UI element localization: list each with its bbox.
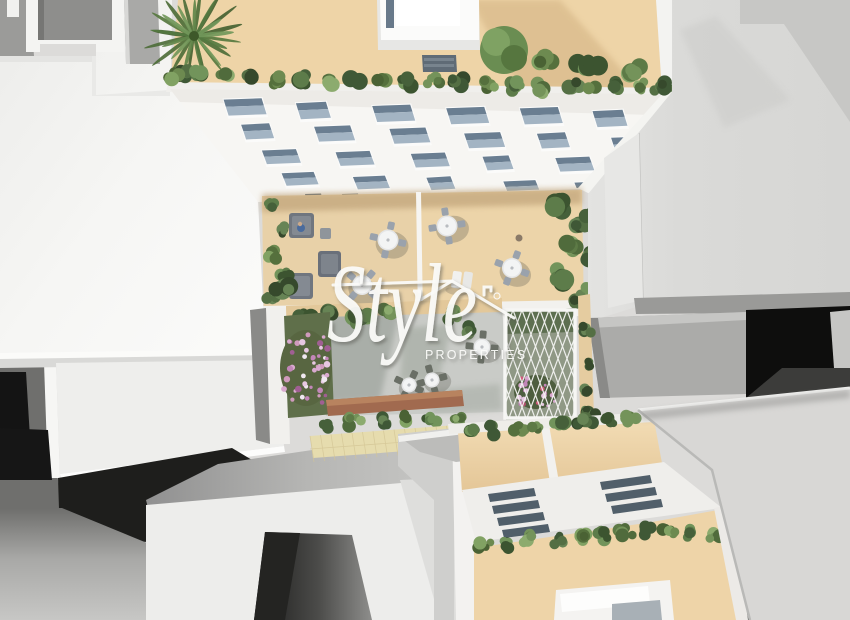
svg-text:PROPERTIES: PROPERTIES [425,348,527,362]
